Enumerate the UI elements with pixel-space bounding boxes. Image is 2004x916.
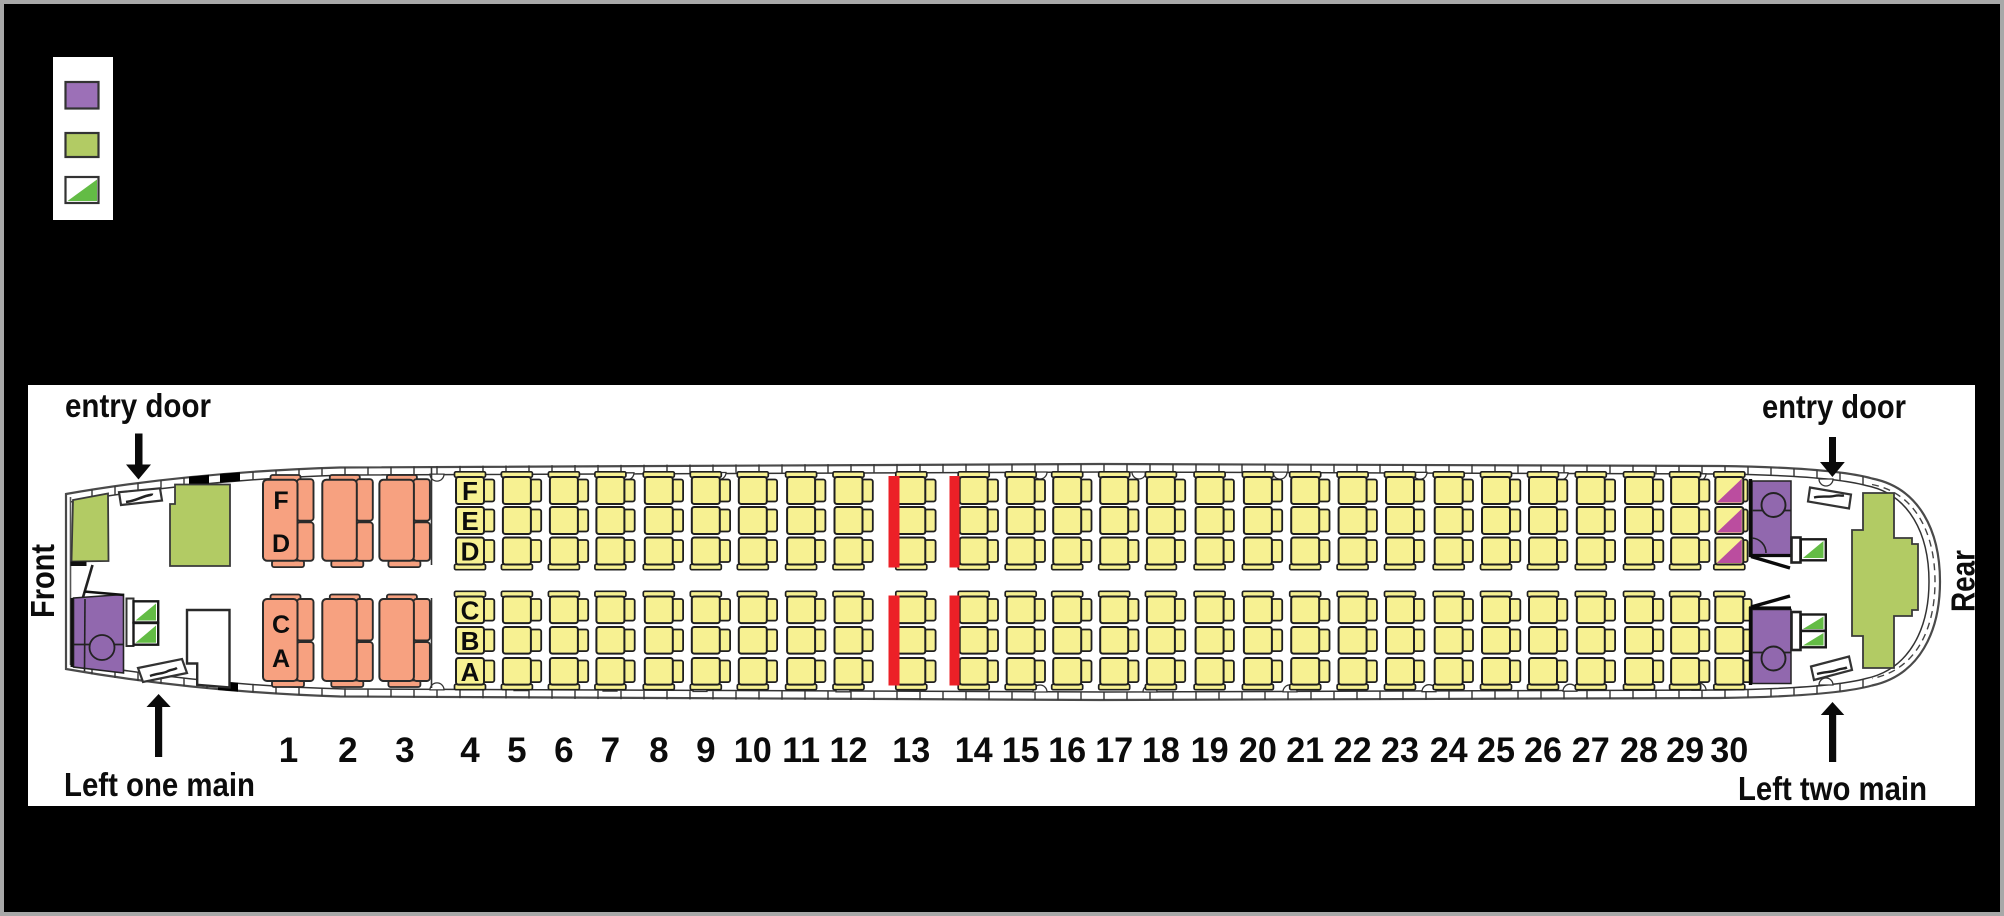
svg-text:Left two main: Left two main xyxy=(1738,770,1927,807)
svg-text:E: E xyxy=(461,506,478,536)
svg-text:18: 18 xyxy=(1142,731,1180,770)
svg-text:28: 28 xyxy=(1620,731,1658,770)
svg-text:2: 2 xyxy=(338,731,357,770)
svg-text:C: C xyxy=(461,595,480,625)
svg-text:F: F xyxy=(462,476,478,506)
svg-text:27: 27 xyxy=(1572,731,1610,770)
svg-text:20: 20 xyxy=(1239,731,1277,770)
svg-text:21: 21 xyxy=(1286,731,1324,770)
svg-text:F: F xyxy=(273,487,288,515)
svg-text:25: 25 xyxy=(1477,731,1515,770)
svg-text:D: D xyxy=(461,537,480,567)
svg-text:4: 4 xyxy=(460,731,480,770)
svg-text:9: 9 xyxy=(696,731,715,770)
svg-text:26: 26 xyxy=(1524,731,1562,770)
svg-text:D: D xyxy=(272,530,290,558)
svg-text:11: 11 xyxy=(782,731,820,770)
svg-text:Rear: Rear xyxy=(1945,550,1982,612)
svg-text:23: 23 xyxy=(1381,731,1419,770)
svg-text:6: 6 xyxy=(554,731,573,770)
svg-text:24: 24 xyxy=(1430,731,1469,770)
svg-text:29: 29 xyxy=(1666,731,1704,770)
svg-text:7: 7 xyxy=(601,731,620,770)
svg-text:17: 17 xyxy=(1095,731,1133,770)
svg-text:B: B xyxy=(461,626,480,656)
svg-text:5: 5 xyxy=(507,731,526,770)
svg-text:1: 1 xyxy=(279,731,298,770)
svg-text:16: 16 xyxy=(1048,731,1086,770)
svg-text:Front: Front xyxy=(24,544,61,618)
svg-text:3: 3 xyxy=(395,731,414,770)
svg-text:C: C xyxy=(272,611,290,639)
svg-text:14: 14 xyxy=(955,731,994,770)
svg-text:22: 22 xyxy=(1334,731,1372,770)
svg-text:A: A xyxy=(272,645,290,673)
svg-text:30: 30 xyxy=(1710,731,1748,770)
svg-text:entry door: entry door xyxy=(1762,388,1906,425)
svg-text:19: 19 xyxy=(1191,731,1229,770)
svg-text:10: 10 xyxy=(734,731,772,770)
svg-text:8: 8 xyxy=(649,731,668,770)
svg-text:A: A xyxy=(461,657,480,687)
svg-text:12: 12 xyxy=(830,731,868,770)
svg-text:13: 13 xyxy=(892,731,930,770)
svg-text:15: 15 xyxy=(1002,731,1040,770)
svg-text:entry door: entry door xyxy=(65,387,211,424)
svg-text:Left one main: Left one main xyxy=(64,766,255,803)
